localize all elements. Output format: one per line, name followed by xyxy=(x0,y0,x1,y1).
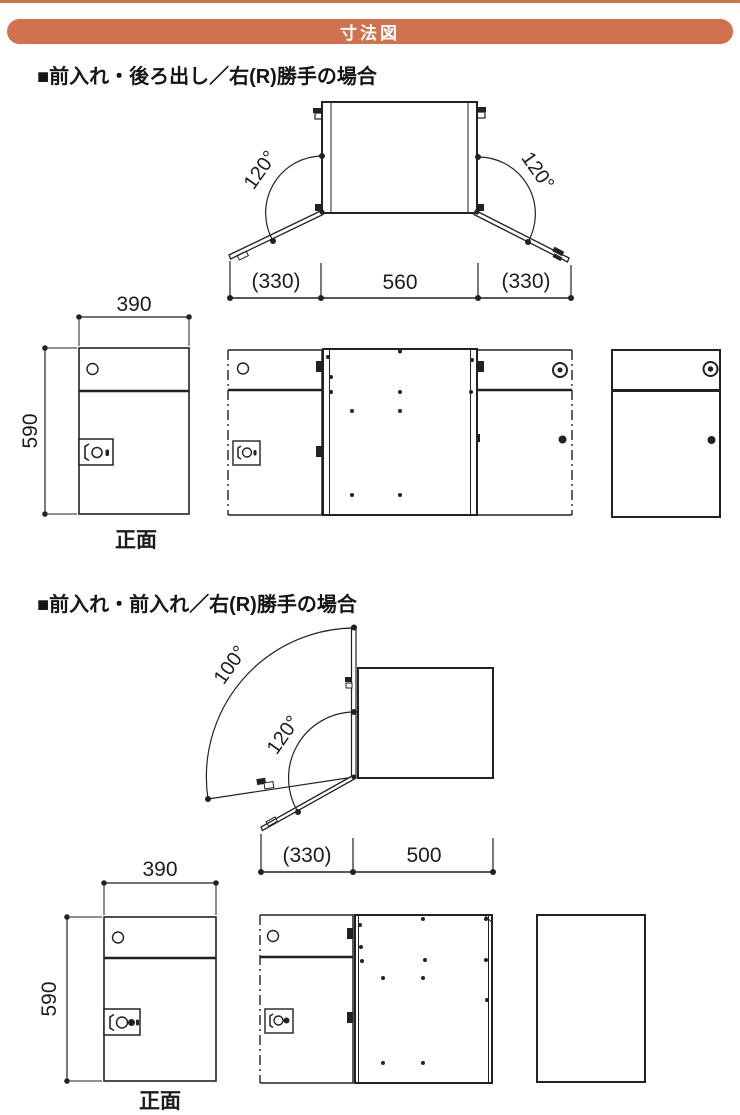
hinge-tab xyxy=(316,446,322,457)
s1-front-view xyxy=(42,314,192,517)
open-door-left xyxy=(229,211,323,260)
s1-plan-view xyxy=(229,102,569,262)
knob-dot xyxy=(708,436,716,444)
hinge-tab xyxy=(347,928,353,939)
knob-dot xyxy=(559,436,567,444)
s2-dim-330: (330) xyxy=(272,844,342,868)
cylinder-lock-icon xyxy=(553,363,567,377)
lock-unit xyxy=(79,439,113,465)
hinge-tab xyxy=(316,361,322,372)
lock-unit xyxy=(265,1009,293,1033)
lock-unit xyxy=(233,441,260,465)
lock-unit xyxy=(104,1009,140,1035)
s2-rear-view xyxy=(537,915,645,1082)
s2-front-view xyxy=(64,880,219,1084)
s1-dim-560: 560 xyxy=(365,271,435,295)
s2-width-dim: 390 xyxy=(125,858,195,882)
door-latch xyxy=(256,777,274,790)
hinge-tab xyxy=(478,361,484,372)
s1-width-dim: 390 xyxy=(99,293,169,317)
hinge-knob xyxy=(345,677,352,688)
dimension-drawing-canvas xyxy=(0,0,740,1111)
s1-height-dim: 590 xyxy=(19,401,43,461)
hinge-knob-right xyxy=(477,107,486,118)
hinge-tab xyxy=(476,434,480,442)
s2-height-dim: 590 xyxy=(38,969,62,1029)
door-closed-position xyxy=(352,627,357,778)
hinge-knob-left xyxy=(313,108,322,119)
s1-rear-view xyxy=(612,350,720,517)
s1-dim-330-left: (330) xyxy=(241,270,311,294)
s1-dim-330-right: (330) xyxy=(491,270,561,294)
s2-unfolded-view xyxy=(260,915,492,1083)
hinge-tab xyxy=(347,1012,353,1023)
s1-front-caption: 正面 xyxy=(96,524,176,554)
s2-dim-500: 500 xyxy=(389,844,459,868)
s1-unfolded-view xyxy=(228,349,572,515)
